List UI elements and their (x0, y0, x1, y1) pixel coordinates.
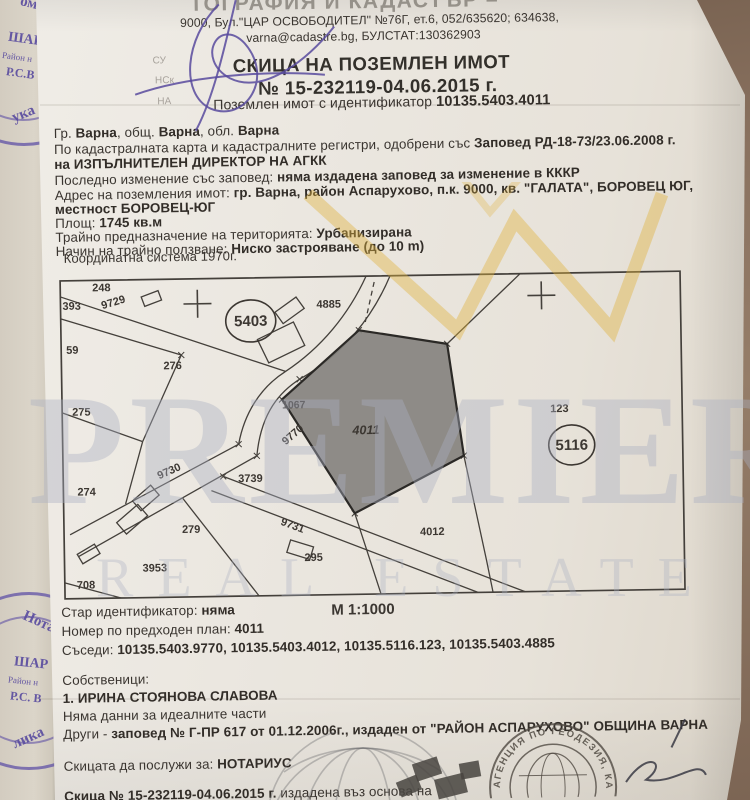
handwritten-signature-bottom (625, 719, 706, 782)
parcel-label-1067: 1067 (282, 399, 306, 411)
parcel-boundary (447, 343, 493, 593)
parcel-label-275: 275 (72, 406, 91, 418)
owners-label: Собственици: (62, 672, 149, 688)
parcel-label-59: 59 (66, 345, 78, 357)
identifier-value: 10135.5403.4011 (436, 92, 551, 110)
cadastral-map: 5403 5116 248 9729 393 4885 59 276 275 1… (58, 257, 689, 627)
parcel-label-3739: 3739 (238, 473, 263, 485)
parcel-boundary (446, 274, 521, 344)
street-9731 (211, 486, 478, 596)
highlighted-parcel-4011 (281, 329, 465, 515)
building (275, 297, 304, 324)
agency-stamp-arc-text: АГЕНЦИЯ ПО ГЕОДЕЗИЯ, КАРТО (473, 703, 614, 793)
parcel-label-4885: 4885 (316, 299, 341, 311)
owner-name: 1. ИРИНА СТОЯНОВА СЛАВОВА (63, 688, 278, 706)
parcel-label-9730: 9730 (156, 461, 183, 482)
parcel-label-276: 276 (163, 360, 182, 372)
coordinate-system-label: Координатна система 1970г. (64, 248, 237, 266)
parcel-label-708: 708 (77, 579, 96, 591)
parcel-label-4011: 4011 (351, 423, 379, 437)
parcel-circled-label: 5403 (234, 313, 268, 331)
photographed-document: ома ШАР Район н Р.С.В ука Нота ШАР Район… (0, 0, 750, 800)
owner-note: Няма данни за идеалните части (63, 706, 267, 724)
other-label: Други - (63, 726, 111, 742)
svg-text:АГЕНЦИЯ ПО ГЕОДЕЗИЯ, КАРТО: АГЕНЦИЯ ПО ГЕОДЕЗИЯ, КАРТО (473, 703, 614, 793)
parcel-label-393: 393 (62, 301, 81, 313)
cadastre-order: Заповед РД-18-73/23.06.2008 г. (474, 132, 676, 150)
issue-rest: издадена въз основа на (276, 783, 432, 800)
agency-stamp: АГЕНЦИЯ ПО ГЕОДЕЗИЯ, КАРТО (473, 703, 724, 799)
parcel-label-3953: 3953 (143, 562, 168, 574)
handwritten-signature-top (124, 0, 356, 140)
parcel-label-123: 123 (550, 403, 569, 415)
map-scale-label: М 1:1000 (331, 601, 395, 619)
parcel-label-4012: 4012 (420, 526, 445, 538)
stamp-inner-ring (509, 744, 596, 799)
prev-plan-label: Номер по предходен план: (61, 621, 234, 639)
use-value: Ниско застрояване (до 10 m) (231, 238, 424, 256)
dashed-boundary (364, 282, 375, 324)
document-content: ТОГРАФИЯ И КАДАСТЪР – 9000, Бул."ЦАР ОСВ… (0, 0, 750, 800)
location-pre: Гр. (54, 126, 76, 141)
purpose-label: Скицата да послужи за: (64, 757, 218, 774)
building (77, 544, 100, 564)
street-9729 (61, 317, 182, 357)
purpose-value: НОТАРИУС (217, 755, 292, 771)
parcel-label-295: 295 (304, 552, 323, 564)
parcel-label-248: 248 (92, 282, 111, 294)
parcel-label-9729: 9729 (100, 294, 127, 313)
prev-plan-value: 4011 (234, 621, 264, 636)
building (141, 291, 161, 307)
issue-number: Скица № 15-232119-04.06.2015 г. (64, 786, 277, 800)
location-city: Варна (75, 125, 117, 141)
parcel-label-279: 279 (182, 524, 201, 536)
old-id-value: няма (201, 602, 235, 618)
parcel-label-9731: 9731 (279, 516, 306, 536)
old-id-label: Стар идентификатор: (61, 603, 201, 620)
parcel-circled-label: 5116 (555, 437, 588, 455)
neighbors-label: Съседи: (62, 642, 118, 658)
neighbors-value: 10135.5403.9770, 10135.5403.4012, 10135.… (117, 635, 555, 657)
parcel-boundary (183, 497, 260, 597)
parcel-label-274: 274 (77, 486, 96, 498)
